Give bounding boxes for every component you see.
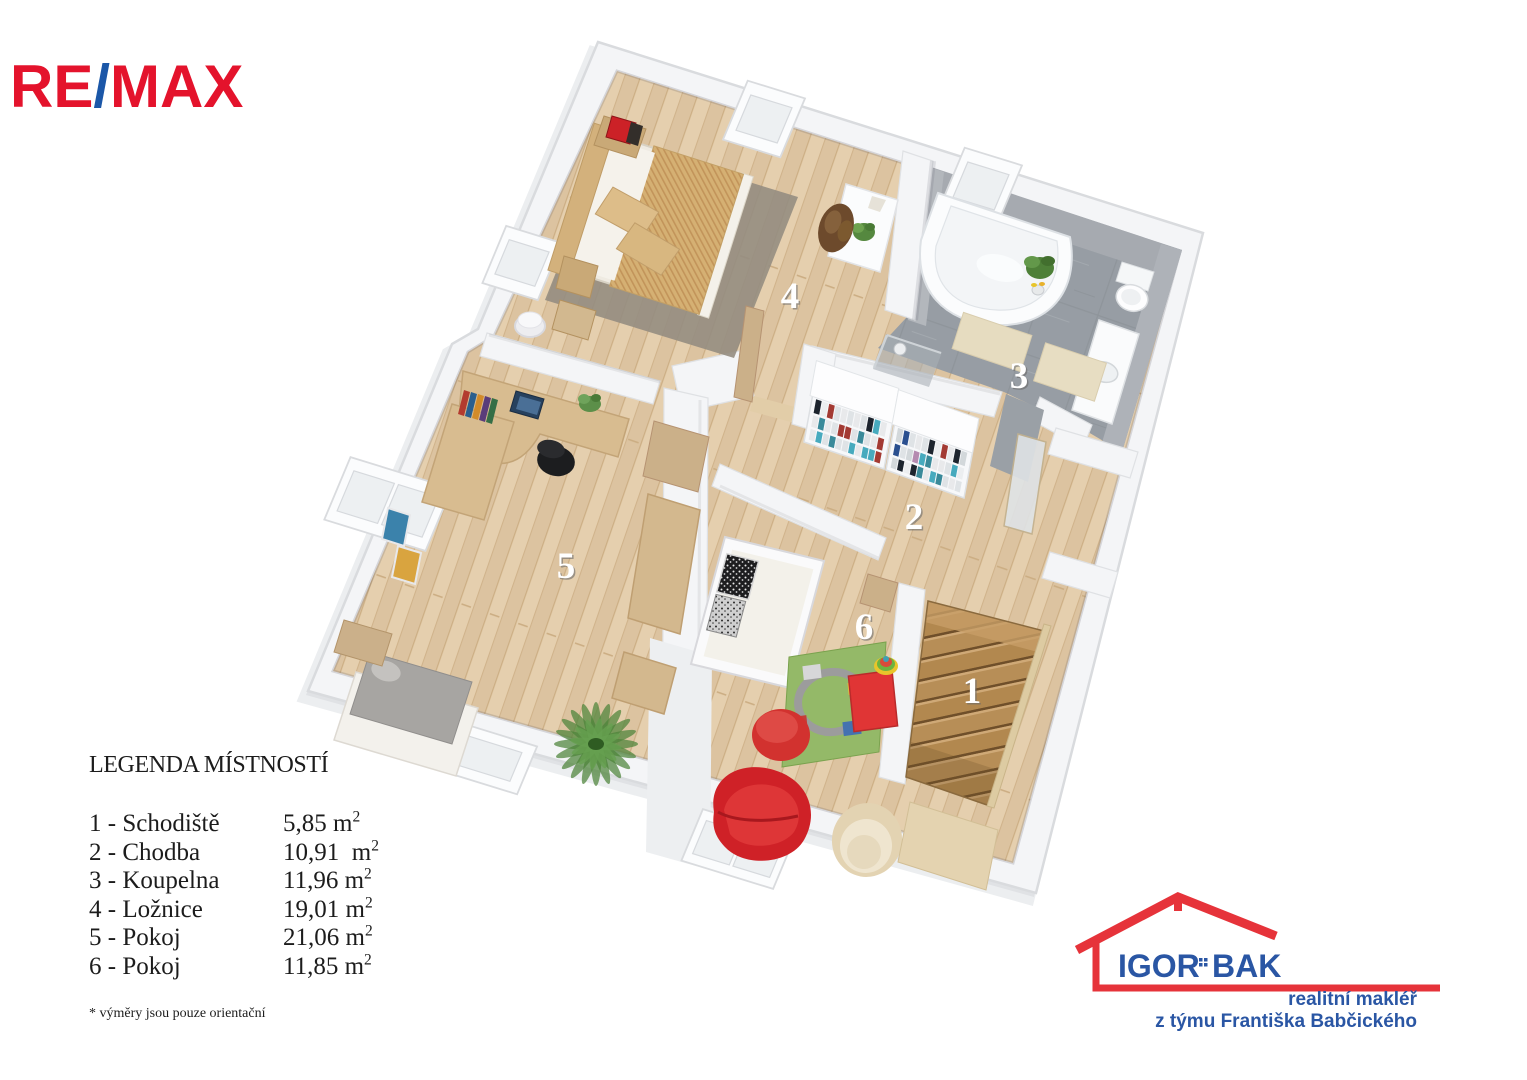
svg-text:5: 5: [557, 546, 576, 587]
svg-text:4: 4: [781, 276, 800, 317]
svg-text:6: 6: [855, 607, 874, 648]
svg-text:BAK: BAK: [1212, 948, 1281, 984]
svg-text:IGOR: IGOR: [1118, 948, 1200, 984]
svg-text:z týmu Františka Babčického: z týmu Františka Babčického: [1155, 1011, 1417, 1032]
svg-text:1: 1: [963, 671, 982, 712]
svg-text:realitní makléř: realitní makléř: [1288, 989, 1417, 1010]
svg-text:3: 3: [1010, 356, 1029, 397]
svg-text:2: 2: [905, 497, 924, 538]
